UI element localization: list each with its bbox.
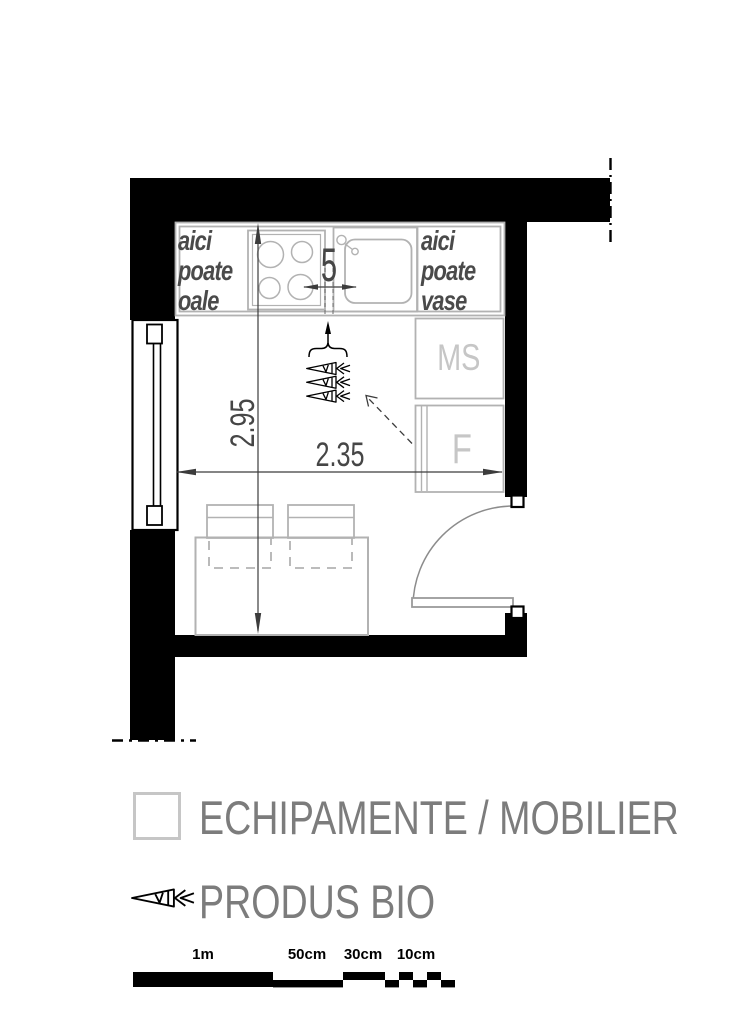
pots-label-line: aici bbox=[178, 226, 232, 256]
burner bbox=[258, 242, 284, 268]
legend-equipment-label: ECHIPAMENTE / MOBILIER bbox=[199, 794, 679, 841]
floor-plan-drawing bbox=[0, 0, 741, 1016]
scale-label-1m: 1m bbox=[173, 946, 233, 963]
scale-segment-1m bbox=[133, 972, 273, 987]
burner bbox=[292, 242, 313, 263]
legend-equipment-swatch bbox=[133, 792, 181, 840]
wall-left-upper bbox=[130, 222, 175, 320]
chair-back bbox=[288, 505, 354, 538]
window bbox=[133, 320, 178, 530]
wall-bottom bbox=[175, 635, 527, 657]
dishes-label: aici poate vase bbox=[421, 226, 475, 316]
dishes-label-line: poate bbox=[421, 256, 475, 286]
scale-segment-10cm bbox=[385, 980, 399, 987]
door-hinge bbox=[512, 496, 524, 508]
bio-product-icon bbox=[307, 390, 350, 402]
scale-segment-10cm bbox=[427, 972, 441, 980]
bio-product-icon bbox=[307, 363, 350, 375]
burner bbox=[259, 278, 280, 299]
bio-product-icon bbox=[307, 376, 350, 388]
scale-label-50cm: 50cm bbox=[277, 946, 337, 963]
scale-segment-50cm bbox=[273, 980, 343, 987]
room-width-dimension-text: 2.35 bbox=[305, 436, 375, 475]
chair-back bbox=[207, 505, 273, 538]
pots-label-line: poate bbox=[178, 256, 232, 286]
scale-bar bbox=[133, 972, 455, 987]
scale-segment-30cm bbox=[343, 972, 385, 980]
bio-products-group bbox=[307, 321, 350, 402]
scale-segment-10cm bbox=[413, 980, 427, 987]
pots-label-line: oale bbox=[178, 286, 232, 316]
sink bbox=[334, 228, 418, 312]
scale-label-30cm: 30cm bbox=[333, 946, 393, 963]
dishes-label-line: vase bbox=[421, 286, 475, 316]
scale-label-10cm: 10cm bbox=[386, 946, 446, 963]
washing-machine-label: MS bbox=[415, 318, 503, 398]
wall-left-lower bbox=[130, 530, 175, 740]
wall-right-upper bbox=[505, 222, 527, 497]
scale-segment-10cm bbox=[441, 980, 455, 987]
gap-dimension-text: 5 bbox=[316, 237, 342, 292]
dining-table bbox=[196, 538, 369, 636]
pots-label: aici poate oale bbox=[178, 226, 232, 316]
door-hinge bbox=[512, 607, 524, 619]
room-height-dimension-text: 2.95 bbox=[224, 388, 262, 458]
up-arrow-icon bbox=[325, 321, 331, 334]
legend-bio-label: PRODUS BIO bbox=[199, 878, 435, 925]
door-leaf bbox=[412, 598, 513, 607]
brace-icon bbox=[309, 343, 347, 357]
wall-top bbox=[130, 178, 610, 222]
fridge-label: F bbox=[421, 405, 503, 492]
scale-segment-10cm bbox=[399, 972, 413, 980]
legend-bio-product-icon bbox=[132, 889, 194, 906]
floor-plan-page: aici poate oale aici poate vase 5 2.95 2… bbox=[0, 0, 741, 1016]
door-swing-arc bbox=[413, 506, 514, 607]
dishes-label-line: aici bbox=[421, 226, 475, 256]
door bbox=[412, 496, 524, 619]
